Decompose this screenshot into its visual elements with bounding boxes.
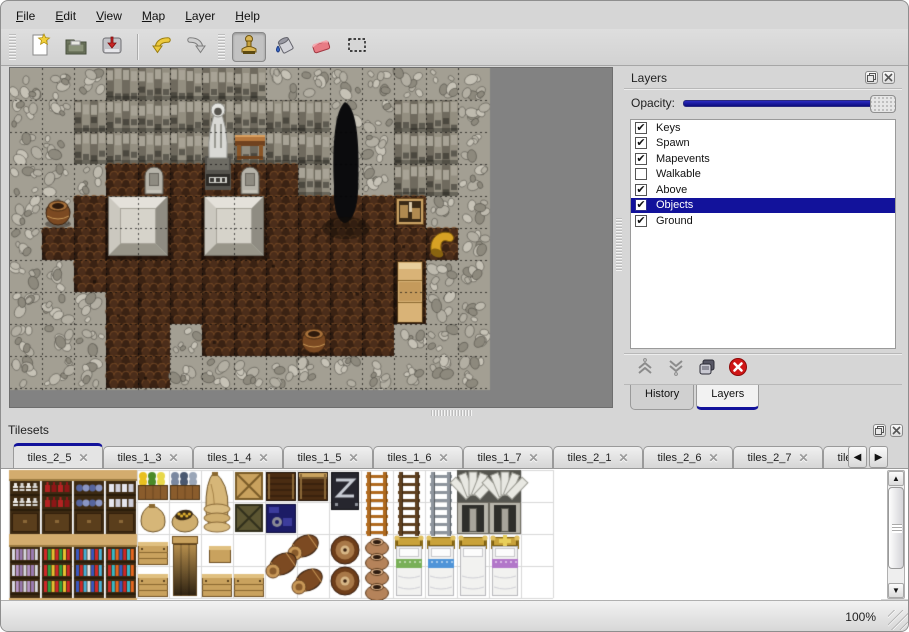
toolbar-grip[interactable] [218, 34, 225, 60]
tab-history[interactable]: History [630, 385, 694, 410]
layer-name: Walkable [656, 168, 701, 180]
horizontal-splitter[interactable] [1, 408, 613, 419]
layers-panel-titlebar: Layers [624, 67, 902, 89]
layer-row-spawn[interactable]: ✔Spawn [631, 136, 895, 152]
save-button[interactable] [95, 32, 129, 62]
fill-icon [272, 32, 298, 63]
tab-close-icon[interactable]: ✕ [348, 451, 358, 465]
tab-label: tiles_1_7 [477, 452, 521, 464]
app-window: FileEditViewMapLayerHelp Layers Opacity:… [0, 0, 909, 632]
layer-name: Ground [656, 215, 693, 227]
tab-scroll-right-icon[interactable]: ▶ [869, 446, 888, 468]
layer-checkbox[interactable]: ✔ [635, 153, 647, 165]
scroll-up-icon[interactable]: ▲ [888, 471, 904, 486]
float-panel-icon[interactable] [865, 71, 878, 84]
new-file-icon [27, 32, 53, 63]
toolbar-grip[interactable] [9, 34, 16, 60]
tilesets-panel: Tilesets tiles_2_5✕tiles_1_3✕tiles_1_4✕t… [1, 419, 909, 600]
layer-checkbox[interactable]: ✔ [635, 215, 647, 227]
opacity-row: Opacity: [624, 89, 902, 117]
menu-file[interactable]: File [6, 6, 45, 26]
status-bar: 100% [1, 600, 909, 632]
layer-row-mapevents[interactable]: ✔Mapevents [631, 151, 895, 167]
menu-layer[interactable]: Layer [175, 6, 225, 26]
tileset-tab-tiles_1_6[interactable]: tiles_1_6✕ [373, 446, 463, 468]
tab-close-icon[interactable]: ✕ [528, 451, 538, 465]
redo-icon [184, 32, 210, 63]
tab-label: tiles_2_1 [567, 452, 611, 464]
rect-select-icon [344, 32, 370, 63]
scrollbar-thumb[interactable] [888, 487, 904, 569]
layer-row-keys[interactable]: ✔Keys [631, 120, 895, 136]
tab-label: tiles_2_6 [657, 452, 701, 464]
undo-button[interactable] [144, 32, 178, 62]
splitter-grip [616, 218, 622, 272]
tileset-canvas[interactable] [1, 469, 881, 600]
zoom-level: 100% [845, 610, 876, 624]
tab-label: tiles_1_3 [117, 452, 161, 464]
layer-list: ✔Keys✔Spawn✔MapeventsWalkable✔Above✔Obje… [630, 119, 896, 349]
layer-name: Keys [656, 122, 680, 134]
close-panel-icon[interactable] [890, 424, 903, 437]
new-file-button[interactable] [23, 32, 57, 62]
tab-label: tiles_1_6 [387, 452, 431, 464]
layer-name: Mapevents [656, 153, 710, 165]
tileset-tab-tiles_2_5[interactable]: tiles_2_5✕ [13, 443, 103, 469]
tab-close-icon[interactable]: ✕ [78, 451, 88, 465]
tab-close-icon[interactable]: ✕ [708, 451, 718, 465]
menu-edit[interactable]: Edit [45, 6, 86, 26]
move-down-icon[interactable] [665, 356, 687, 383]
map-canvas[interactable] [10, 68, 612, 407]
menu-help[interactable]: Help [225, 6, 270, 26]
layer-row-above[interactable]: ✔Above [631, 182, 895, 198]
open-button[interactable] [59, 32, 93, 62]
tileset-tab-tiles_2_7[interactable]: tiles_2_7✕ [733, 446, 823, 468]
close-panel-icon[interactable] [882, 71, 895, 84]
tileset-scrollbar[interactable]: ▲ ▼ [887, 470, 905, 599]
toolbar-separator [137, 34, 138, 60]
tileset-tabs: tiles_2_5✕tiles_1_3✕tiles_1_4✕tiles_1_5✕… [13, 440, 861, 468]
layer-row-objects[interactable]: ✔Objects [631, 198, 895, 214]
layer-checkbox[interactable]: ✔ [635, 122, 647, 134]
dock-tab-bar: HistoryLayers [624, 385, 902, 410]
fill-button[interactable] [268, 32, 302, 62]
layer-name: Above [656, 184, 687, 196]
opacity-label: Opacity: [631, 96, 675, 110]
save-icon [99, 32, 125, 63]
tileset-tab-bar: tiles_2_5✕tiles_1_3✕tiles_1_4✕tiles_1_5✕… [1, 440, 909, 468]
float-panel-icon[interactable] [873, 424, 886, 437]
tileset-tab-tiles_1_4[interactable]: tiles_1_4✕ [193, 446, 283, 468]
layer-checkbox[interactable]: ✔ [635, 137, 647, 149]
layer-checkbox[interactable]: ✔ [635, 184, 647, 196]
layer-row-ground[interactable]: ✔Ground [631, 213, 895, 229]
tileset-tab-tiles_2_6[interactable]: tiles_2_6✕ [643, 446, 733, 468]
eraser-icon [308, 32, 334, 63]
toolbar [1, 29, 908, 66]
tileset-tab-tiles_2_1[interactable]: tiles_2_1✕ [553, 446, 643, 468]
tileset-tab-tiles_1_5[interactable]: tiles_1_5✕ [283, 446, 373, 468]
layer-name: Spawn [656, 137, 690, 149]
tab-close-icon[interactable]: ✕ [258, 451, 268, 465]
opacity-slider-handle[interactable] [870, 95, 896, 113]
tileset-view: ▲ ▼ [1, 468, 909, 599]
redo-button[interactable] [180, 32, 214, 62]
tab-label: tiles_1_5 [297, 452, 341, 464]
layer-name: Objects [656, 199, 693, 211]
tilesets-panel-title: Tilesets [8, 423, 49, 437]
delete-icon[interactable] [727, 356, 749, 383]
stamp-icon [236, 32, 262, 63]
menu-map[interactable]: Map [132, 6, 175, 26]
eraser-button[interactable] [304, 32, 338, 62]
move-up-icon[interactable] [634, 356, 656, 383]
duplicate-icon[interactable] [696, 356, 718, 383]
tab-close-icon[interactable]: ✕ [618, 451, 628, 465]
stamp-button[interactable] [232, 32, 266, 62]
tab-layers[interactable]: Layers [696, 385, 759, 410]
layer-buttons [624, 353, 902, 385]
tab-label: tiles_1_4 [207, 452, 251, 464]
menu-bar: FileEditViewMapLayerHelp [1, 4, 908, 28]
layers-panel-title: Layers [631, 71, 667, 85]
menu-view[interactable]: View [86, 6, 132, 26]
layer-checkbox[interactable]: ✔ [635, 199, 647, 211]
scroll-down-icon[interactable]: ▼ [888, 583, 904, 598]
vertical-splitter[interactable] [614, 67, 624, 408]
tab-close-icon[interactable]: ✕ [798, 451, 808, 465]
tilesets-panel-titlebar: Tilesets [1, 419, 909, 441]
layers-panel: Layers Opacity: ✔Keys✔Spawn✔MapeventsWal… [624, 67, 902, 413]
tab-close-icon[interactable]: ✕ [438, 451, 448, 465]
splitter-grip [431, 410, 473, 416]
layer-row-walkable[interactable]: Walkable [631, 167, 895, 183]
open-icon [63, 32, 89, 63]
resize-grip[interactable] [888, 610, 908, 630]
tab-scroll-left-icon[interactable]: ◀ [848, 446, 867, 468]
layer-checkbox[interactable] [635, 168, 647, 180]
rect-select-button[interactable] [340, 32, 374, 62]
tileset-tab-tiles_1_3[interactable]: tiles_1_3✕ [103, 446, 193, 468]
tab-label: tiles_2_7 [747, 452, 791, 464]
opacity-slider[interactable] [683, 100, 895, 107]
undo-icon [148, 32, 174, 63]
tab-close-icon[interactable]: ✕ [168, 451, 178, 465]
map-viewport[interactable] [9, 67, 613, 408]
tileset-tab-tiles_1_7[interactable]: tiles_1_7✕ [463, 446, 553, 468]
tab-label: tiles_2_5 [27, 452, 71, 464]
